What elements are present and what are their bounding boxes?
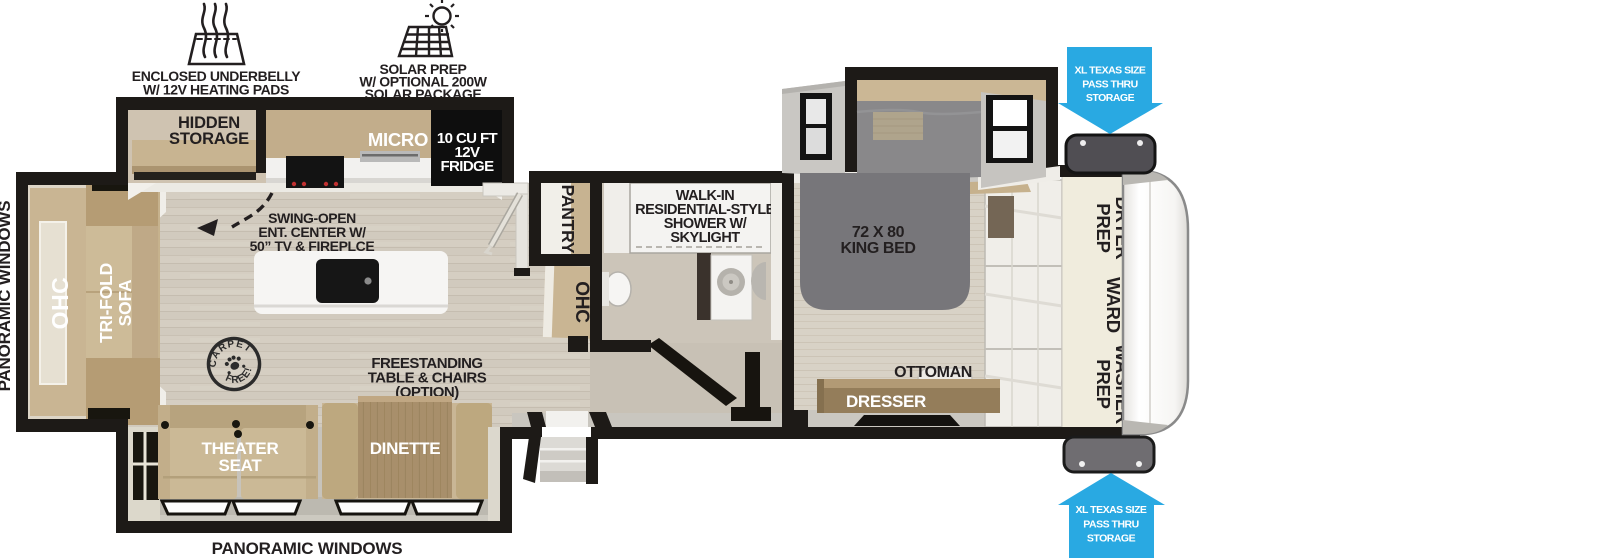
- svg-text:KING BED: KING BED: [840, 240, 915, 257]
- svg-text:PREP: PREP: [1093, 359, 1114, 409]
- svg-text:STORAGE: STORAGE: [1087, 533, 1136, 545]
- svg-text:FRIDGE: FRIDGE: [440, 158, 494, 175]
- svg-text:PASS THRU: PASS THRU: [1082, 79, 1137, 91]
- svg-text:SEAT: SEAT: [219, 456, 263, 475]
- svg-text:STORAGE: STORAGE: [1086, 92, 1135, 104]
- svg-text:OHC: OHC: [47, 277, 73, 330]
- svg-text:OTTOMAN: OTTOMAN: [894, 364, 972, 381]
- svg-text:PANTRY: PANTRY: [558, 185, 578, 254]
- svg-text:PANORAMIC WINDOWS: PANORAMIC WINDOWS: [212, 539, 403, 558]
- svg-text:SKYLIGHT: SKYLIGHT: [670, 230, 740, 246]
- svg-text:PANORAMIC WINDOWS: PANORAMIC WINDOWS: [0, 201, 14, 392]
- svg-text:TRI-FOLD: TRI-FOLD: [96, 263, 116, 343]
- svg-text:DRESSER: DRESSER: [846, 392, 926, 411]
- svg-text:72 X 80: 72 X 80: [852, 224, 905, 241]
- svg-text:W/ 12V HEATING PADS: W/ 12V HEATING PADS: [143, 82, 289, 98]
- svg-text:50” TV & FIREPLCE: 50” TV & FIREPLCE: [250, 238, 375, 254]
- svg-text:DINETTE: DINETTE: [370, 439, 441, 458]
- svg-text:STORAGE: STORAGE: [169, 130, 249, 148]
- svg-text:SOFA: SOFA: [115, 279, 135, 326]
- svg-text:XL TEXAS SIZE: XL TEXAS SIZE: [1075, 65, 1146, 77]
- svg-text:OHC: OHC: [571, 281, 592, 323]
- svg-text:XL TEXAS SIZE: XL TEXAS SIZE: [1076, 504, 1147, 516]
- svg-text:PREP: PREP: [1093, 203, 1114, 253]
- svg-text:PASS THRU: PASS THRU: [1083, 519, 1138, 531]
- svg-text:WARD: WARD: [1103, 277, 1124, 333]
- svg-text:MICRO: MICRO: [368, 129, 428, 150]
